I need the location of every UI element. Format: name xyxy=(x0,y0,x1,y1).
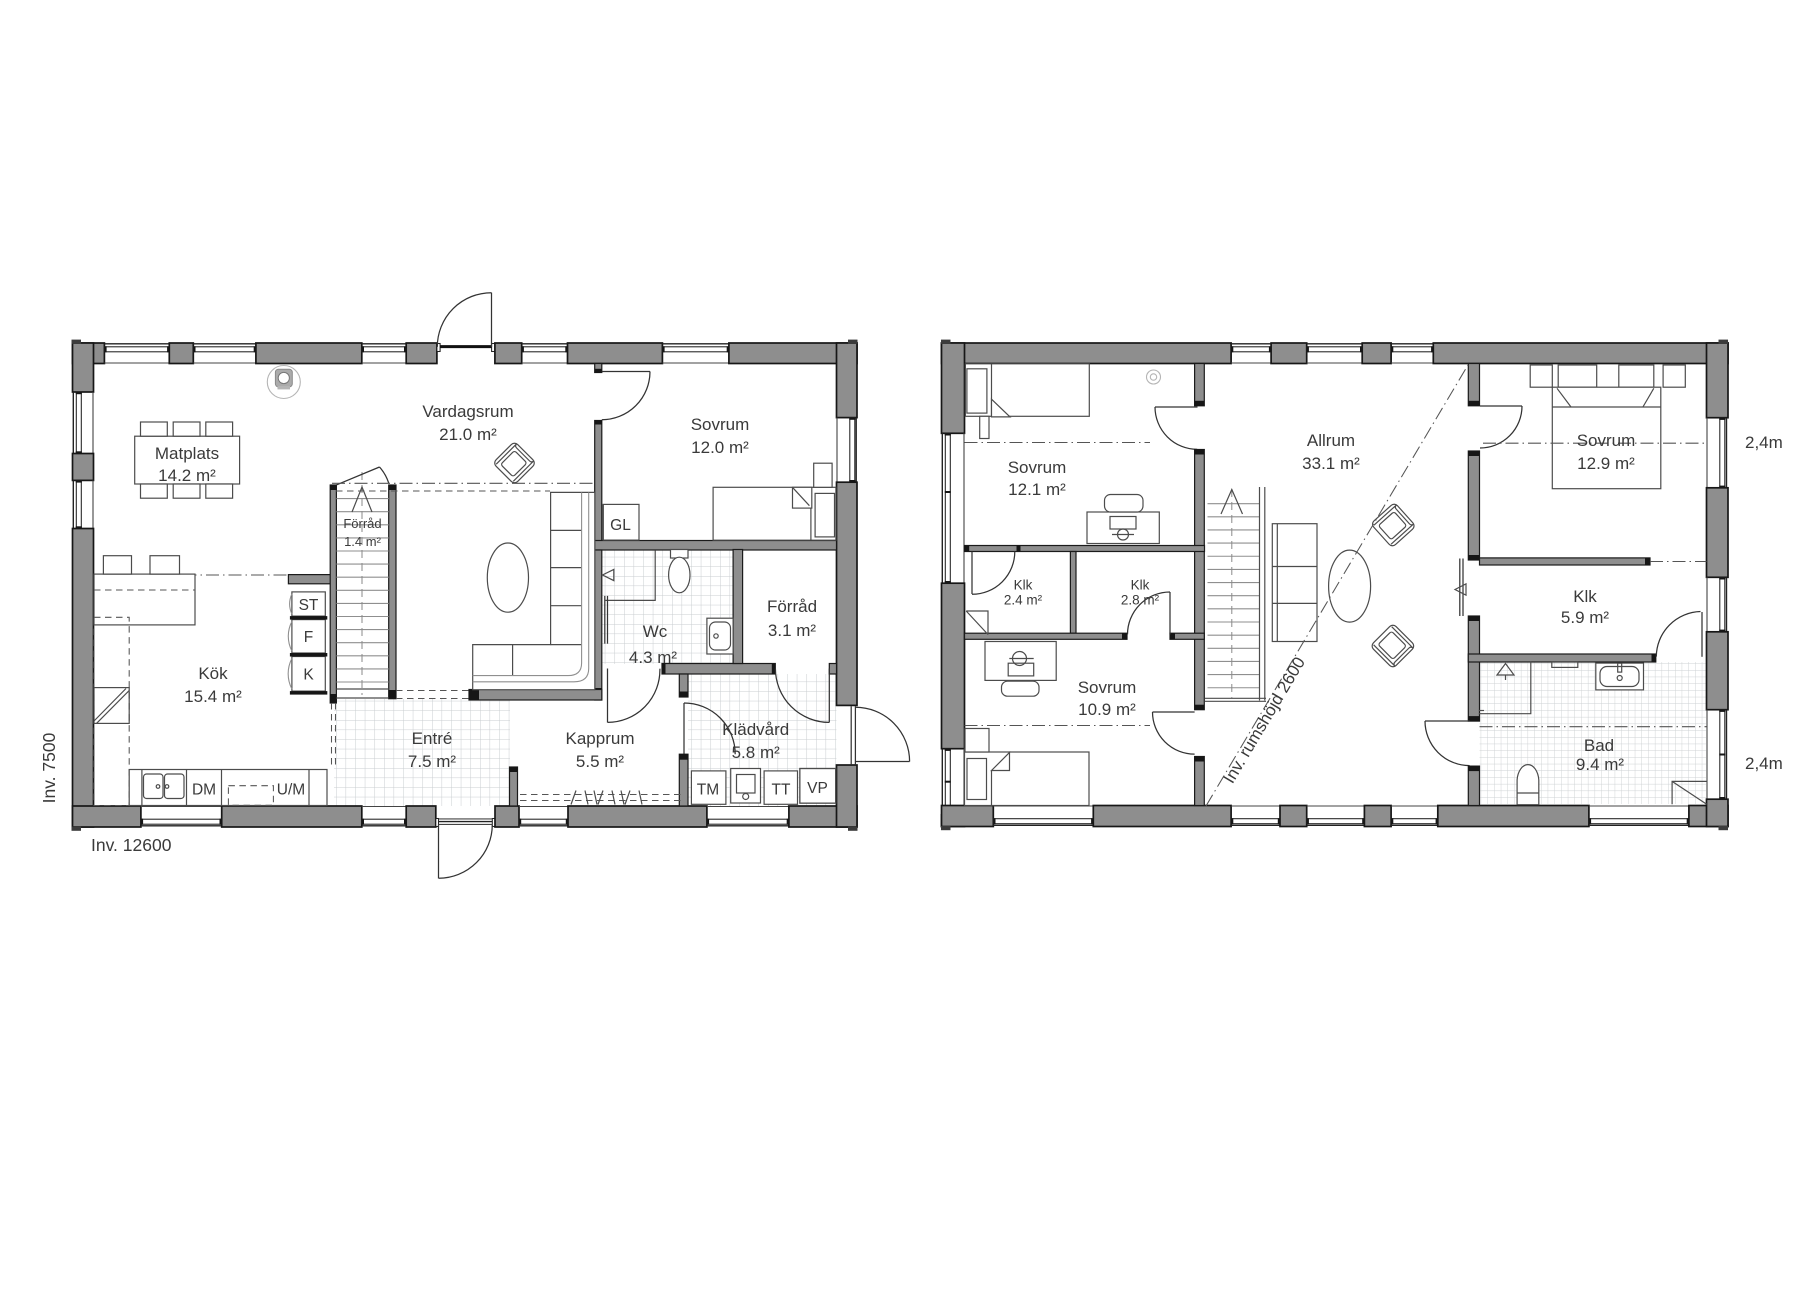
svg-text:7.5 m²: 7.5 m² xyxy=(408,752,457,771)
svg-text:VP: VP xyxy=(807,780,828,797)
svg-text:14.2 m²: 14.2 m² xyxy=(158,466,216,485)
svg-text:Förråd: Förråd xyxy=(767,597,817,616)
svg-text:21.0 m²: 21.0 m² xyxy=(439,425,497,444)
svg-text:12.0 m²: 12.0 m² xyxy=(691,438,749,457)
svg-text:Matplats: Matplats xyxy=(155,444,219,463)
svg-text:ST: ST xyxy=(299,597,319,614)
svg-text:GL: GL xyxy=(610,517,631,534)
svg-text:10.9 m²: 10.9 m² xyxy=(1078,700,1136,719)
svg-text:Klk: Klk xyxy=(1573,587,1597,606)
svg-text:Sovrum: Sovrum xyxy=(691,415,750,434)
svg-text:K: K xyxy=(303,667,314,684)
svg-text:33.1 m²: 33.1 m² xyxy=(1302,454,1360,473)
svg-text:Wc: Wc xyxy=(643,622,668,641)
svg-text:Förråd: Förråd xyxy=(343,516,381,531)
svg-text:5.5 m²: 5.5 m² xyxy=(576,752,625,771)
svg-text:2,4m: 2,4m xyxy=(1745,433,1783,452)
svg-text:Klädvård: Klädvård xyxy=(722,720,789,739)
svg-text:2.8 m²: 2.8 m² xyxy=(1121,593,1160,608)
svg-text:Bad: Bad xyxy=(1584,736,1614,755)
svg-text:Inv. 12600: Inv. 12600 xyxy=(91,835,172,855)
svg-text:Allrum: Allrum xyxy=(1307,431,1355,450)
svg-text:9.4 m²: 9.4 m² xyxy=(1576,755,1625,774)
svg-text:3.1 m²: 3.1 m² xyxy=(768,621,817,640)
svg-text:Sovrum: Sovrum xyxy=(1008,458,1067,477)
svg-text:5.8 m²: 5.8 m² xyxy=(732,743,781,762)
svg-text:TM: TM xyxy=(697,782,719,799)
svg-text:1.4 m²: 1.4 m² xyxy=(344,534,382,549)
svg-text:Vardagsrum: Vardagsrum xyxy=(422,402,513,421)
svg-text:12.1 m²: 12.1 m² xyxy=(1008,480,1066,499)
svg-text:Klk: Klk xyxy=(1131,578,1150,593)
svg-text:TT: TT xyxy=(772,782,791,799)
svg-text:15.4 m²: 15.4 m² xyxy=(184,687,242,706)
svg-text:Klk: Klk xyxy=(1014,578,1033,593)
svg-text:Sovrum: Sovrum xyxy=(1577,431,1636,450)
svg-text:4.3 m²: 4.3 m² xyxy=(629,648,678,667)
svg-text:2.4 m²: 2.4 m² xyxy=(1004,593,1043,608)
svg-text:Inv. 7500: Inv. 7500 xyxy=(39,732,59,803)
svg-text:5.9 m²: 5.9 m² xyxy=(1561,608,1610,627)
svg-text:Sovrum: Sovrum xyxy=(1078,678,1137,697)
svg-text:12.9 m²: 12.9 m² xyxy=(1577,454,1635,473)
svg-text:U/M: U/M xyxy=(277,782,305,799)
svg-text:F: F xyxy=(304,629,313,646)
svg-text:Kapprum: Kapprum xyxy=(566,729,635,748)
svg-text:2,4m: 2,4m xyxy=(1745,754,1783,773)
svg-text:Kök: Kök xyxy=(198,664,228,683)
svg-text:DM: DM xyxy=(192,782,216,799)
svg-text:Entré: Entré xyxy=(412,729,453,748)
